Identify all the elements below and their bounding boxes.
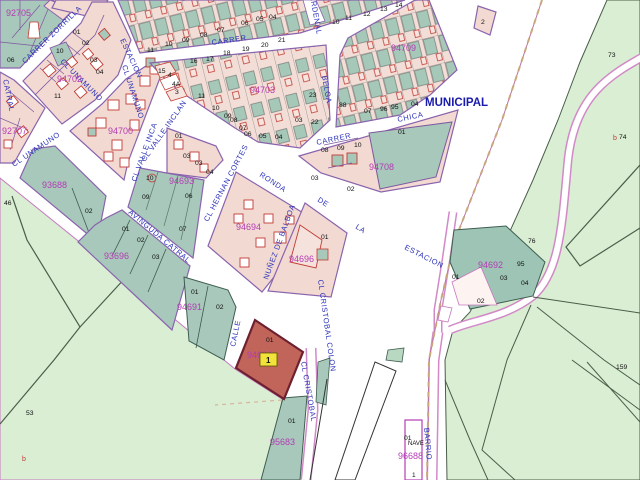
svg-text:b: b — [22, 456, 26, 463]
svg-text:10: 10 — [146, 175, 154, 182]
svg-text:19: 19 — [242, 46, 250, 53]
svg-text:03: 03 — [311, 175, 319, 182]
svg-text:01: 01 — [266, 337, 274, 344]
svg-text:22: 22 — [311, 119, 319, 126]
svg-text:01: 01 — [122, 226, 130, 233]
svg-text:03: 03 — [152, 254, 160, 261]
svg-text:94696: 94696 — [289, 254, 314, 264]
svg-text:03: 03 — [500, 275, 508, 282]
svg-text:95: 95 — [391, 104, 399, 111]
svg-text:94702: 94702 — [57, 74, 82, 84]
svg-text:09: 09 — [337, 145, 345, 152]
svg-text:04: 04 — [521, 280, 529, 287]
svg-text:53: 53 — [26, 410, 34, 417]
svg-text:94692: 94692 — [478, 260, 503, 270]
svg-text:02: 02 — [347, 186, 355, 193]
svg-text:MUNICIPAL: MUNICIPAL — [425, 97, 488, 109]
svg-text:09: 09 — [182, 37, 190, 44]
svg-text:95683: 95683 — [270, 437, 295, 447]
svg-text:08: 08 — [200, 32, 208, 39]
svg-text:02: 02 — [85, 208, 93, 215]
svg-text:03: 03 — [183, 153, 191, 160]
svg-text:07: 07 — [364, 108, 372, 115]
svg-text:18: 18 — [223, 50, 231, 57]
svg-text:94691: 94691 — [177, 302, 202, 312]
svg-text:01: 01 — [452, 274, 460, 281]
svg-text:76: 76 — [528, 238, 536, 245]
svg-text:10: 10 — [212, 105, 220, 112]
svg-text:03: 03 — [295, 117, 303, 124]
svg-text:06: 06 — [241, 20, 249, 27]
svg-text:04: 04 — [206, 169, 214, 176]
svg-text:01: 01 — [175, 133, 183, 140]
svg-text:02: 02 — [82, 40, 90, 47]
svg-text:23: 23 — [309, 92, 317, 99]
svg-text:10: 10 — [332, 19, 340, 26]
svg-text:01: 01 — [288, 418, 296, 425]
svg-text:03: 03 — [195, 160, 203, 167]
svg-text:21: 21 — [278, 37, 286, 44]
svg-text:07: 07 — [179, 226, 187, 233]
svg-text:NAVE: NAVE — [408, 441, 424, 447]
svg-text:04: 04 — [96, 69, 104, 76]
svg-text:12: 12 — [363, 11, 371, 18]
svg-text:10: 10 — [165, 41, 173, 48]
svg-text:11: 11 — [198, 93, 205, 100]
svg-text:46: 46 — [4, 200, 12, 207]
svg-text:04: 04 — [275, 134, 283, 141]
svg-text:02: 02 — [216, 304, 224, 311]
svg-text:74: 74 — [619, 134, 627, 141]
svg-text:94708: 94708 — [369, 162, 394, 172]
svg-text:94703: 94703 — [250, 85, 275, 95]
svg-text:93696: 93696 — [104, 251, 129, 261]
svg-text:1: 1 — [266, 356, 271, 365]
svg-text:73: 73 — [608, 52, 616, 59]
svg-text:17: 17 — [206, 56, 214, 63]
svg-text:11: 11 — [345, 15, 352, 22]
svg-text:04: 04 — [411, 101, 419, 108]
svg-text:94700: 94700 — [108, 126, 133, 136]
svg-text:11: 11 — [147, 47, 154, 54]
svg-text:159: 159 — [616, 364, 628, 371]
svg-text:06: 06 — [185, 193, 193, 200]
svg-text:88: 88 — [339, 102, 347, 109]
svg-text:96: 96 — [380, 106, 388, 113]
svg-text:4A: 4A — [172, 81, 181, 88]
svg-text:11: 11 — [54, 93, 61, 100]
svg-text:01: 01 — [321, 234, 329, 241]
svg-text:01: 01 — [398, 129, 406, 136]
svg-text:10: 10 — [354, 142, 362, 149]
svg-text:4: 4 — [168, 72, 172, 79]
svg-text:93688: 93688 — [42, 180, 67, 190]
svg-text:07: 07 — [217, 27, 225, 34]
svg-text:08: 08 — [321, 147, 329, 154]
svg-text:1: 1 — [412, 472, 416, 479]
svg-text:94693: 94693 — [169, 176, 194, 186]
svg-text:96688: 96688 — [398, 451, 423, 461]
svg-text:13: 13 — [380, 6, 388, 13]
svg-text:04: 04 — [269, 14, 277, 21]
svg-text:03: 03 — [90, 57, 98, 64]
svg-text:01: 01 — [73, 29, 81, 36]
svg-text:15: 15 — [158, 68, 166, 75]
svg-text:20: 20 — [261, 42, 269, 49]
svg-text:01: 01 — [191, 289, 199, 296]
svg-text:05: 05 — [256, 16, 264, 23]
svg-text:05: 05 — [259, 133, 267, 140]
svg-text:16: 16 — [190, 58, 198, 65]
svg-text:09: 09 — [142, 194, 150, 201]
svg-text:02: 02 — [477, 298, 485, 305]
svg-text:06: 06 — [7, 57, 15, 64]
svg-text:08: 08 — [230, 117, 238, 124]
svg-text:3: 3 — [175, 89, 179, 96]
svg-text:92707: 92707 — [2, 126, 27, 136]
svg-text:92705: 92705 — [6, 8, 31, 18]
svg-text:94694: 94694 — [236, 222, 261, 232]
svg-text:94709: 94709 — [391, 43, 416, 53]
svg-text:10: 10 — [56, 48, 64, 55]
svg-text:14: 14 — [395, 2, 403, 9]
svg-text:b: b — [613, 135, 617, 142]
svg-text:02: 02 — [137, 237, 145, 244]
svg-text:95: 95 — [517, 261, 525, 268]
svg-text:2: 2 — [481, 19, 485, 26]
svg-text:06: 06 — [244, 131, 252, 138]
